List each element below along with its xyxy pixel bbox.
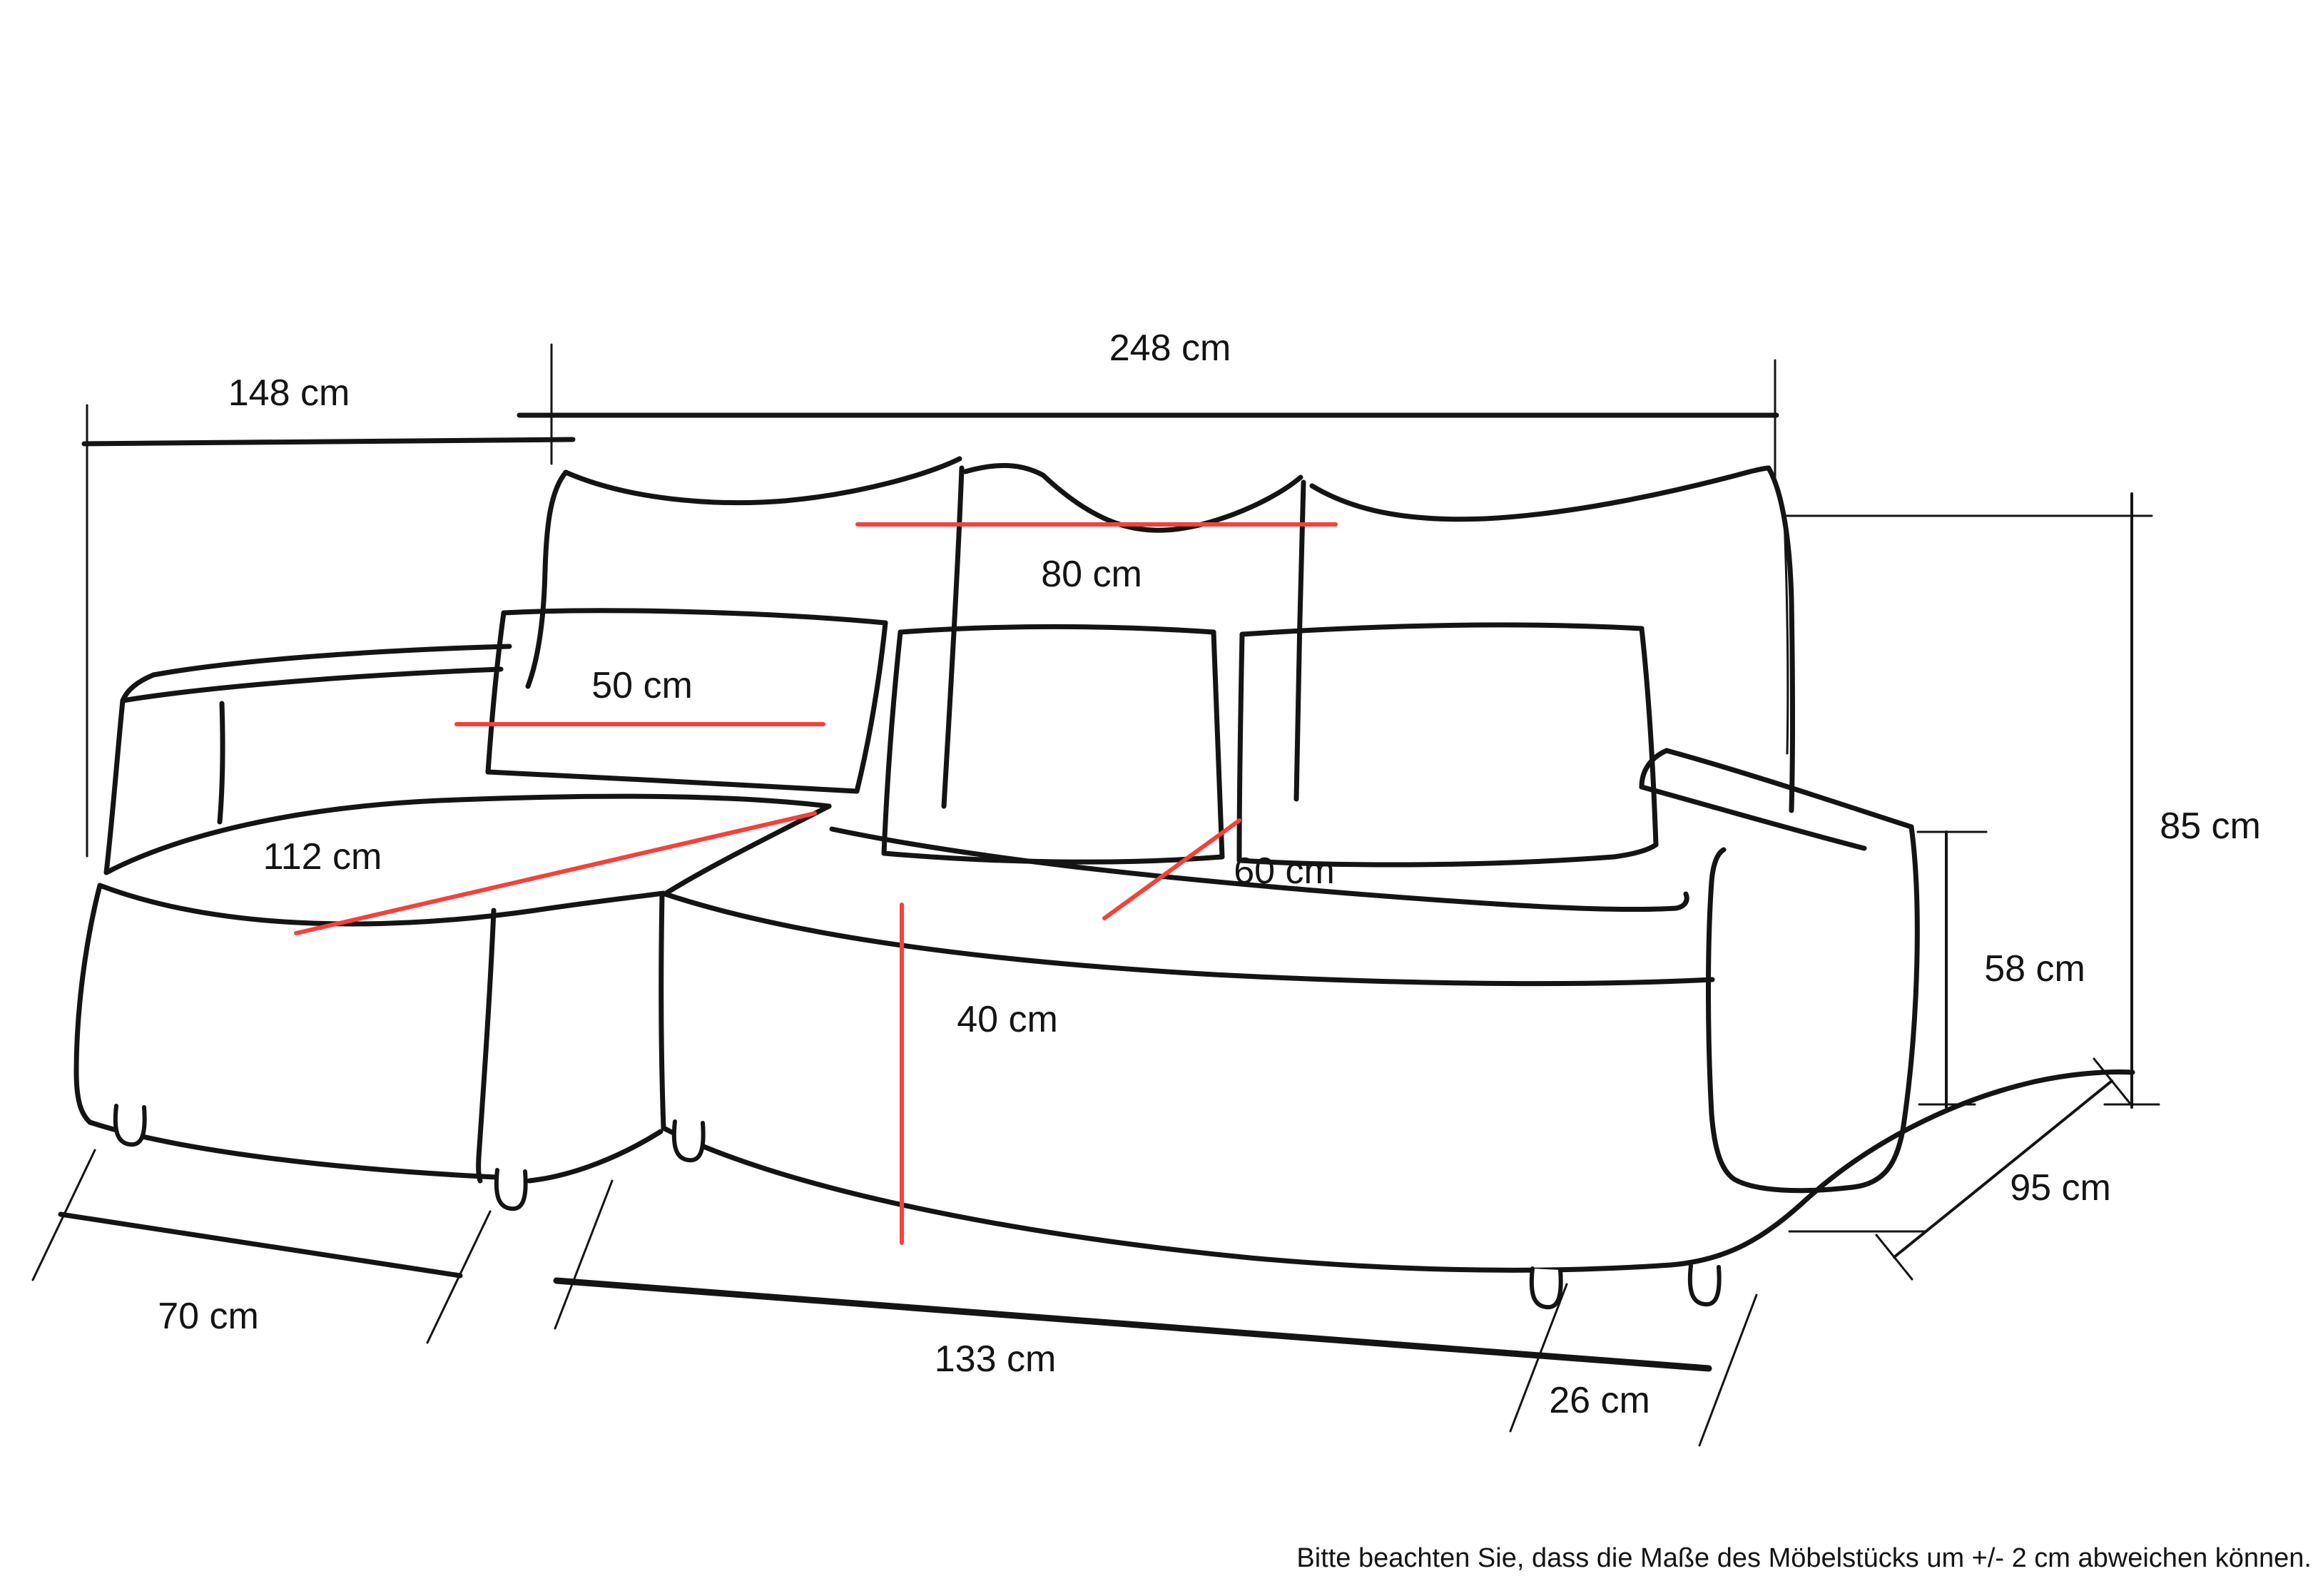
dimension-95-bottom-tick bbox=[1876, 1235, 1912, 1279]
pillow-right-left-edge bbox=[1239, 634, 1242, 860]
dimension-label-248: 248 cm bbox=[1109, 327, 1231, 369]
chaise-bottom-edge bbox=[90, 1122, 497, 1177]
dimension-133-left-tick bbox=[555, 1181, 612, 1328]
dimension-label-80: 80 cm bbox=[1041, 554, 1142, 595]
pillow-middle-top-edge bbox=[900, 627, 1214, 633]
chaise-front-left-edge bbox=[76, 885, 100, 1122]
dimension-58 bbox=[1918, 832, 1986, 1107]
dimension-85 bbox=[1785, 494, 2159, 1107]
chaise-seat-front-edge bbox=[100, 885, 664, 924]
right-armrest-front-right-edge bbox=[1853, 827, 1917, 1187]
seat-bottom-edge bbox=[664, 1128, 1671, 1270]
seat-front-left-edge bbox=[661, 894, 664, 1128]
dimension-label-148: 148 cm bbox=[228, 372, 350, 414]
pillow-middle-bottom-edge bbox=[884, 853, 1222, 862]
diagram-canvas: 248 cm 148 cm 80 cm 50 cm 112 cm 60 cm 4… bbox=[0, 0, 2318, 1596]
right-armrest-front-left-edge bbox=[1709, 850, 1724, 1114]
leg-armrest-right bbox=[1690, 1266, 1719, 1304]
right-armrest-top-outer-edge bbox=[1667, 751, 1911, 827]
dimension-70-right-tick bbox=[427, 1211, 490, 1343]
back-cushion-right-top-edge bbox=[1312, 468, 1769, 519]
dimension-line-60 bbox=[1104, 820, 1239, 918]
pillow-left-top-edge bbox=[504, 611, 885, 623]
dimension-line-70 bbox=[61, 1214, 460, 1276]
dimension-label-85: 85 cm bbox=[2160, 805, 2261, 847]
pillow-left-right-edge bbox=[857, 623, 885, 791]
pillow-left-left-edge bbox=[488, 613, 504, 772]
leg-chaise-left bbox=[116, 1106, 145, 1144]
tolerance-note: Bitte beachten Sie, dass die Maße des Mö… bbox=[1296, 1543, 2312, 1573]
dimension-label-50: 50 cm bbox=[591, 665, 693, 706]
dimension-70-left-tick bbox=[33, 1150, 95, 1280]
chaise-right-bottom-edge bbox=[529, 1132, 661, 1181]
left-armrest-inner-seam bbox=[220, 703, 223, 822]
back-cushion-right-side-edge bbox=[1769, 468, 1793, 810]
dimension-95-top-tick bbox=[2094, 1059, 2130, 1103]
right-armrest-top-inner-edge bbox=[1642, 787, 1864, 848]
dimension-label-70: 70 cm bbox=[158, 1296, 259, 1337]
dimension-label-112: 112 cm bbox=[263, 836, 382, 878]
pillow-middle-left-edge bbox=[884, 632, 900, 853]
pillow-left-bottom-edge bbox=[488, 772, 857, 791]
right-armrest bbox=[1642, 751, 1917, 1191]
leg-seat-right bbox=[1532, 1269, 1561, 1307]
dimension-label-95: 95 cm bbox=[2010, 1167, 2111, 1209]
lumbar-pillows bbox=[488, 611, 1656, 865]
pillow-middle-right-edge bbox=[1214, 632, 1222, 857]
back-cushions bbox=[528, 459, 1793, 810]
dimension-lines-black bbox=[33, 345, 2159, 1445]
back-cushion-left-top-edge bbox=[566, 459, 960, 503]
dimension-line-148 bbox=[84, 439, 573, 444]
back-cushion-left-middle-seam bbox=[944, 468, 962, 806]
leg-chaise-right bbox=[497, 1170, 526, 1209]
leg-seat-left bbox=[674, 1122, 703, 1160]
back-cushion-left-side-edge bbox=[528, 472, 566, 686]
seat-chaise-junction-seam bbox=[665, 806, 829, 894]
dimension-70 bbox=[33, 1150, 490, 1343]
chaise-section bbox=[76, 796, 829, 1181]
pillow-right-right-edge bbox=[1642, 629, 1656, 845]
dimension-label-58: 58 cm bbox=[1984, 948, 2085, 990]
sofa-dimension-diagram: 248 cm 148 cm 80 cm 50 cm 112 cm 60 cm 4… bbox=[0, 0, 2318, 1596]
left-armrest-top-inner-edge bbox=[123, 669, 501, 701]
left-armrest-outer-side-edge bbox=[106, 701, 123, 873]
dimension-label-60: 60 cm bbox=[1234, 850, 1335, 892]
chaise-front-right-edge bbox=[479, 910, 494, 1181]
dimension-label-26: 26 cm bbox=[1549, 1380, 1650, 1421]
back-cushion-middle-top-edge bbox=[965, 465, 1301, 530]
back-cushion-middle-right-seam bbox=[1296, 482, 1303, 799]
dimension-label-133: 133 cm bbox=[935, 1338, 1057, 1380]
dimension-label-40: 40 cm bbox=[957, 999, 1058, 1040]
